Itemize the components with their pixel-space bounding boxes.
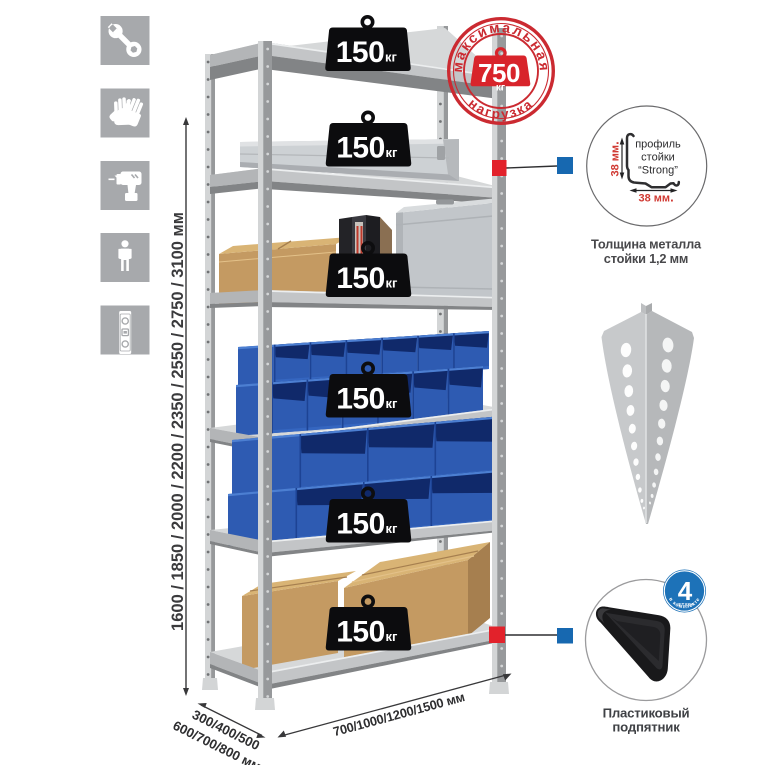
svg-text:кг: кг: [386, 276, 399, 291]
svg-text:кг: кг: [386, 396, 399, 411]
svg-text:подпятник: подпятник: [612, 720, 680, 735]
svg-text:150: 150: [336, 262, 385, 295]
svg-text:150: 150: [336, 508, 385, 541]
svg-text:150: 150: [336, 616, 385, 649]
svg-text:Толщина металла: Толщина металла: [591, 237, 702, 252]
svg-text:стойки: стойки: [641, 152, 675, 164]
svg-text:Пластиковый: Пластиковый: [603, 706, 690, 721]
svg-text:4: 4: [678, 576, 693, 606]
svg-text:кг: кг: [386, 145, 399, 160]
svg-text:150: 150: [336, 132, 385, 165]
svg-text:кг: кг: [496, 83, 505, 94]
svg-text:кг: кг: [385, 50, 398, 65]
svg-text:“Strong”: “Strong”: [638, 165, 678, 177]
svg-text:кг: кг: [386, 521, 399, 536]
svg-text:стойки 1,2 мм: стойки 1,2 мм: [604, 251, 688, 266]
svg-text:150: 150: [336, 383, 385, 416]
svg-text:38 мм.: 38 мм.: [607, 141, 622, 176]
svg-text:150: 150: [336, 36, 385, 69]
svg-text:1600 / 1850 / 2000 / 2200 / 23: 1600 / 1850 / 2000 / 2200 / 2350 / 2550 …: [169, 212, 187, 631]
svg-text:38 мм.: 38 мм.: [639, 190, 674, 205]
svg-text:профиль: профиль: [635, 139, 681, 151]
svg-text:штуки: штуки: [678, 603, 694, 608]
svg-text:кг: кг: [386, 629, 399, 644]
